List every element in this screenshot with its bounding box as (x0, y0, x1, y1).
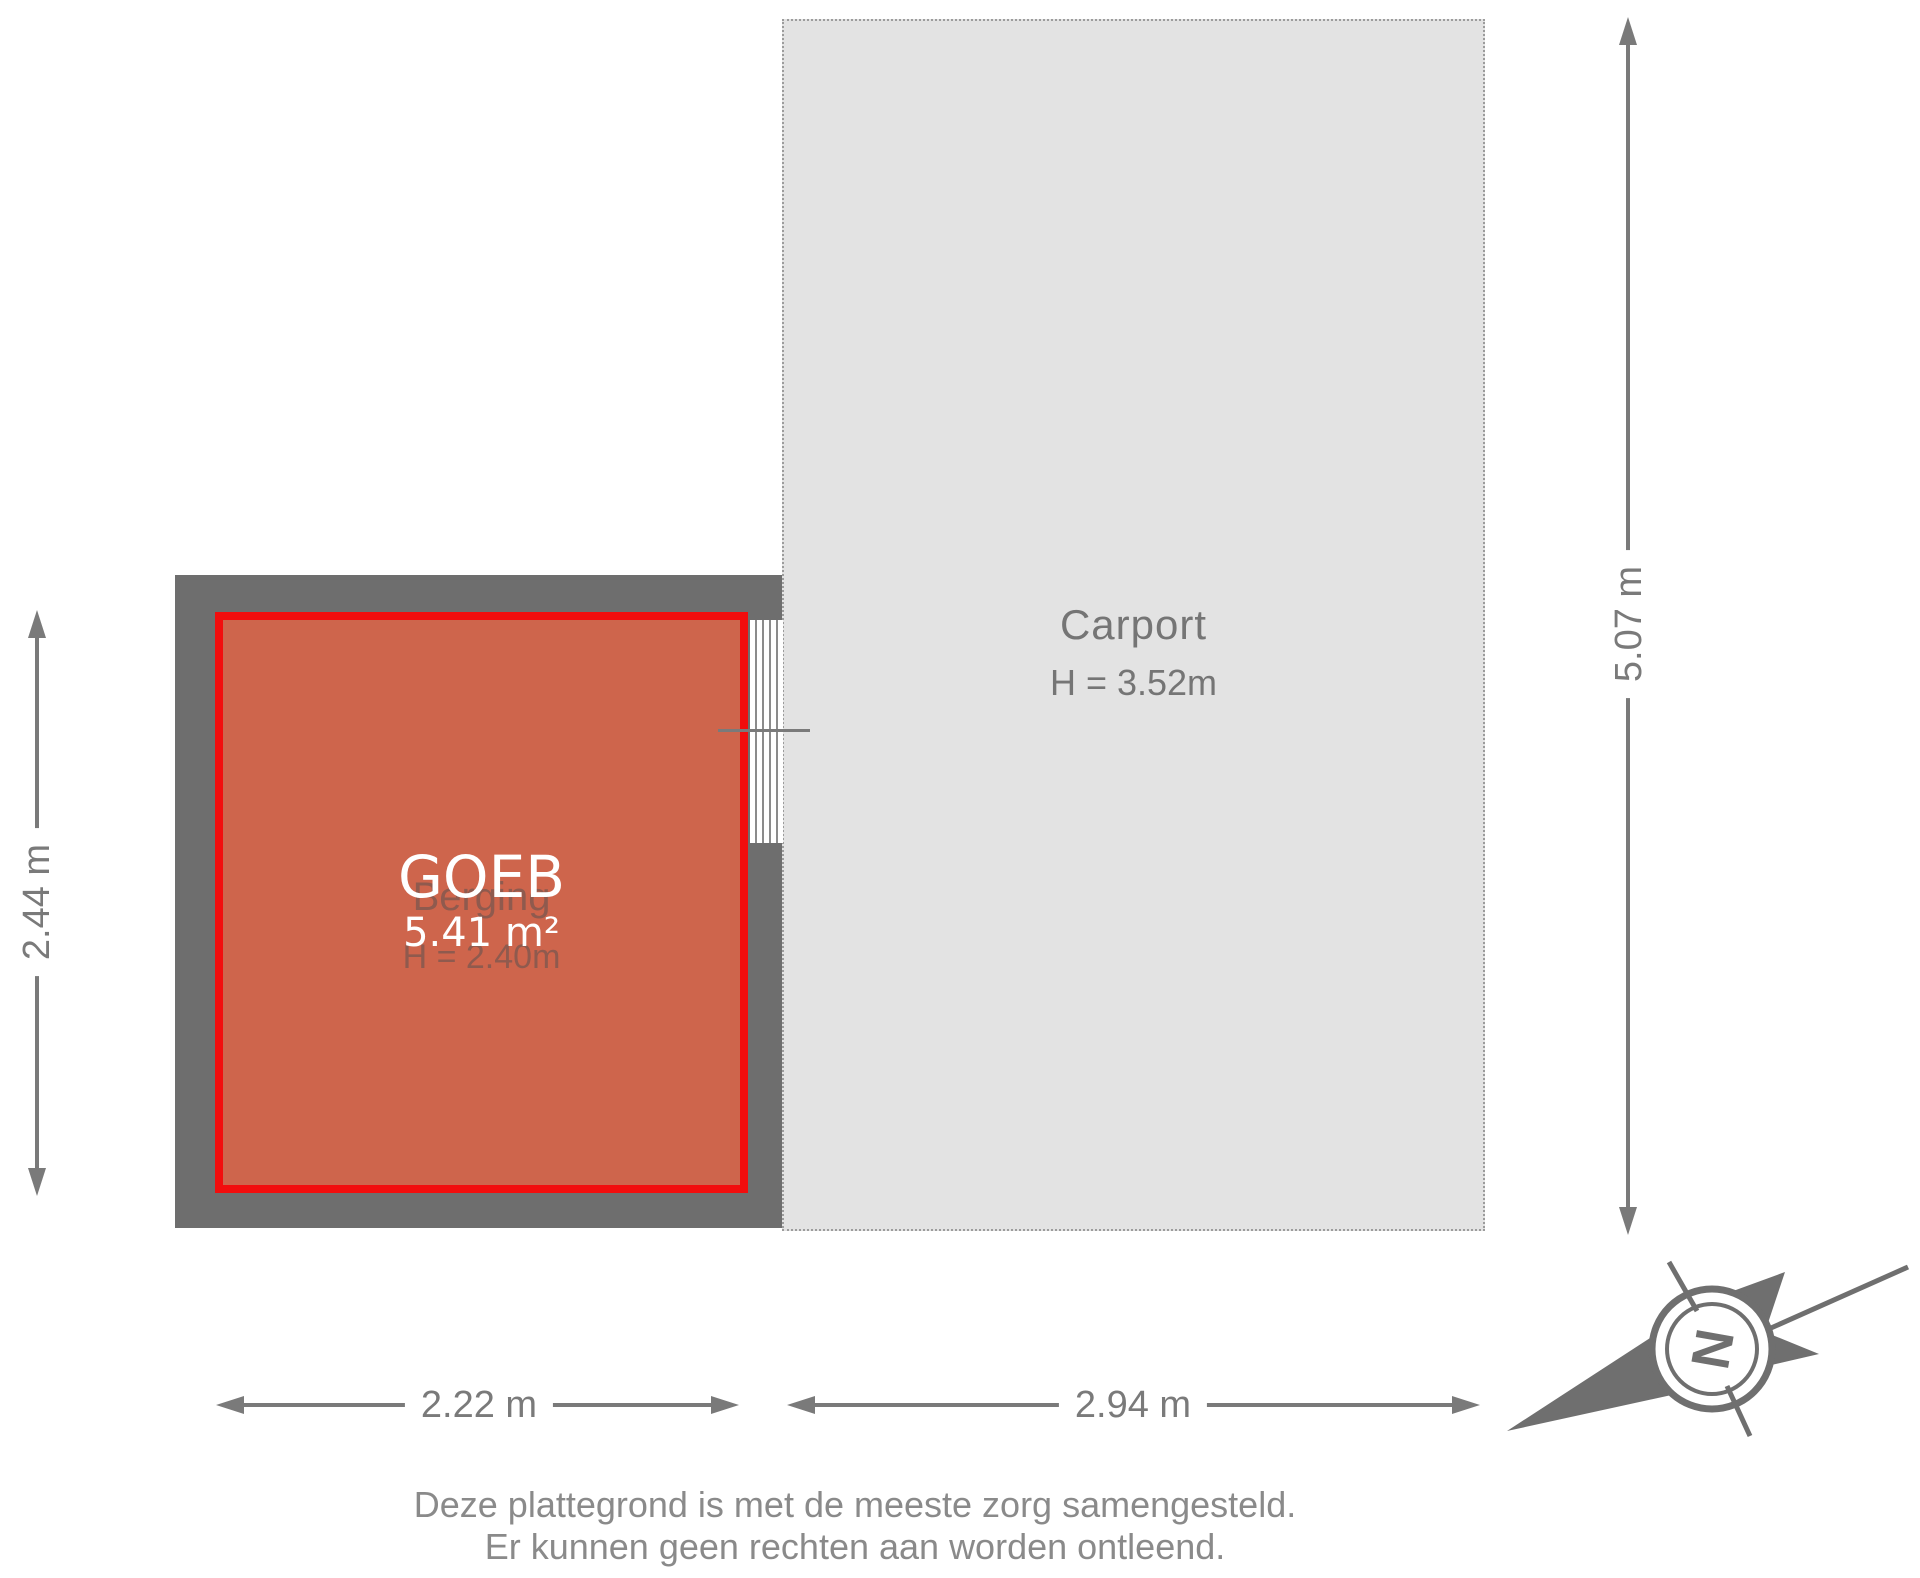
dim-label-carport-width: 2.94 m (1059, 1380, 1207, 1430)
dim-label-room-width: 2.22 m (405, 1380, 553, 1430)
dim-label-room-height: 2.44 m (12, 828, 62, 976)
window-marker-line (718, 729, 810, 732)
carport-area: Carport H = 3.52m (782, 19, 1485, 1231)
room-area-label: 5.41 m² (223, 913, 740, 953)
disclaimer-line-2: Er kunnen geen rechten aan worden ontlee… (80, 1526, 1630, 1568)
disclaimer: Deze plattegrond is met de meeste zorg s… (80, 1484, 1630, 1568)
disclaimer-line-1: Deze plattegrond is met de meeste zorg s… (80, 1484, 1630, 1526)
room-overlay-label: GOEB (223, 848, 740, 906)
floorplan-canvas: Carport H = 3.52m Berging GOEB H = 2.40m… (0, 0, 1920, 1578)
compass-icon: N (1455, 1238, 1920, 1473)
dim-label-total-height: 5.07 m (1604, 550, 1654, 698)
storage-room-highlight: Berging GOEB H = 2.40m 5.41 m² (215, 612, 748, 1193)
carport-label: Carport (784, 604, 1483, 646)
carport-height-label: H = 3.52m (784, 665, 1483, 701)
